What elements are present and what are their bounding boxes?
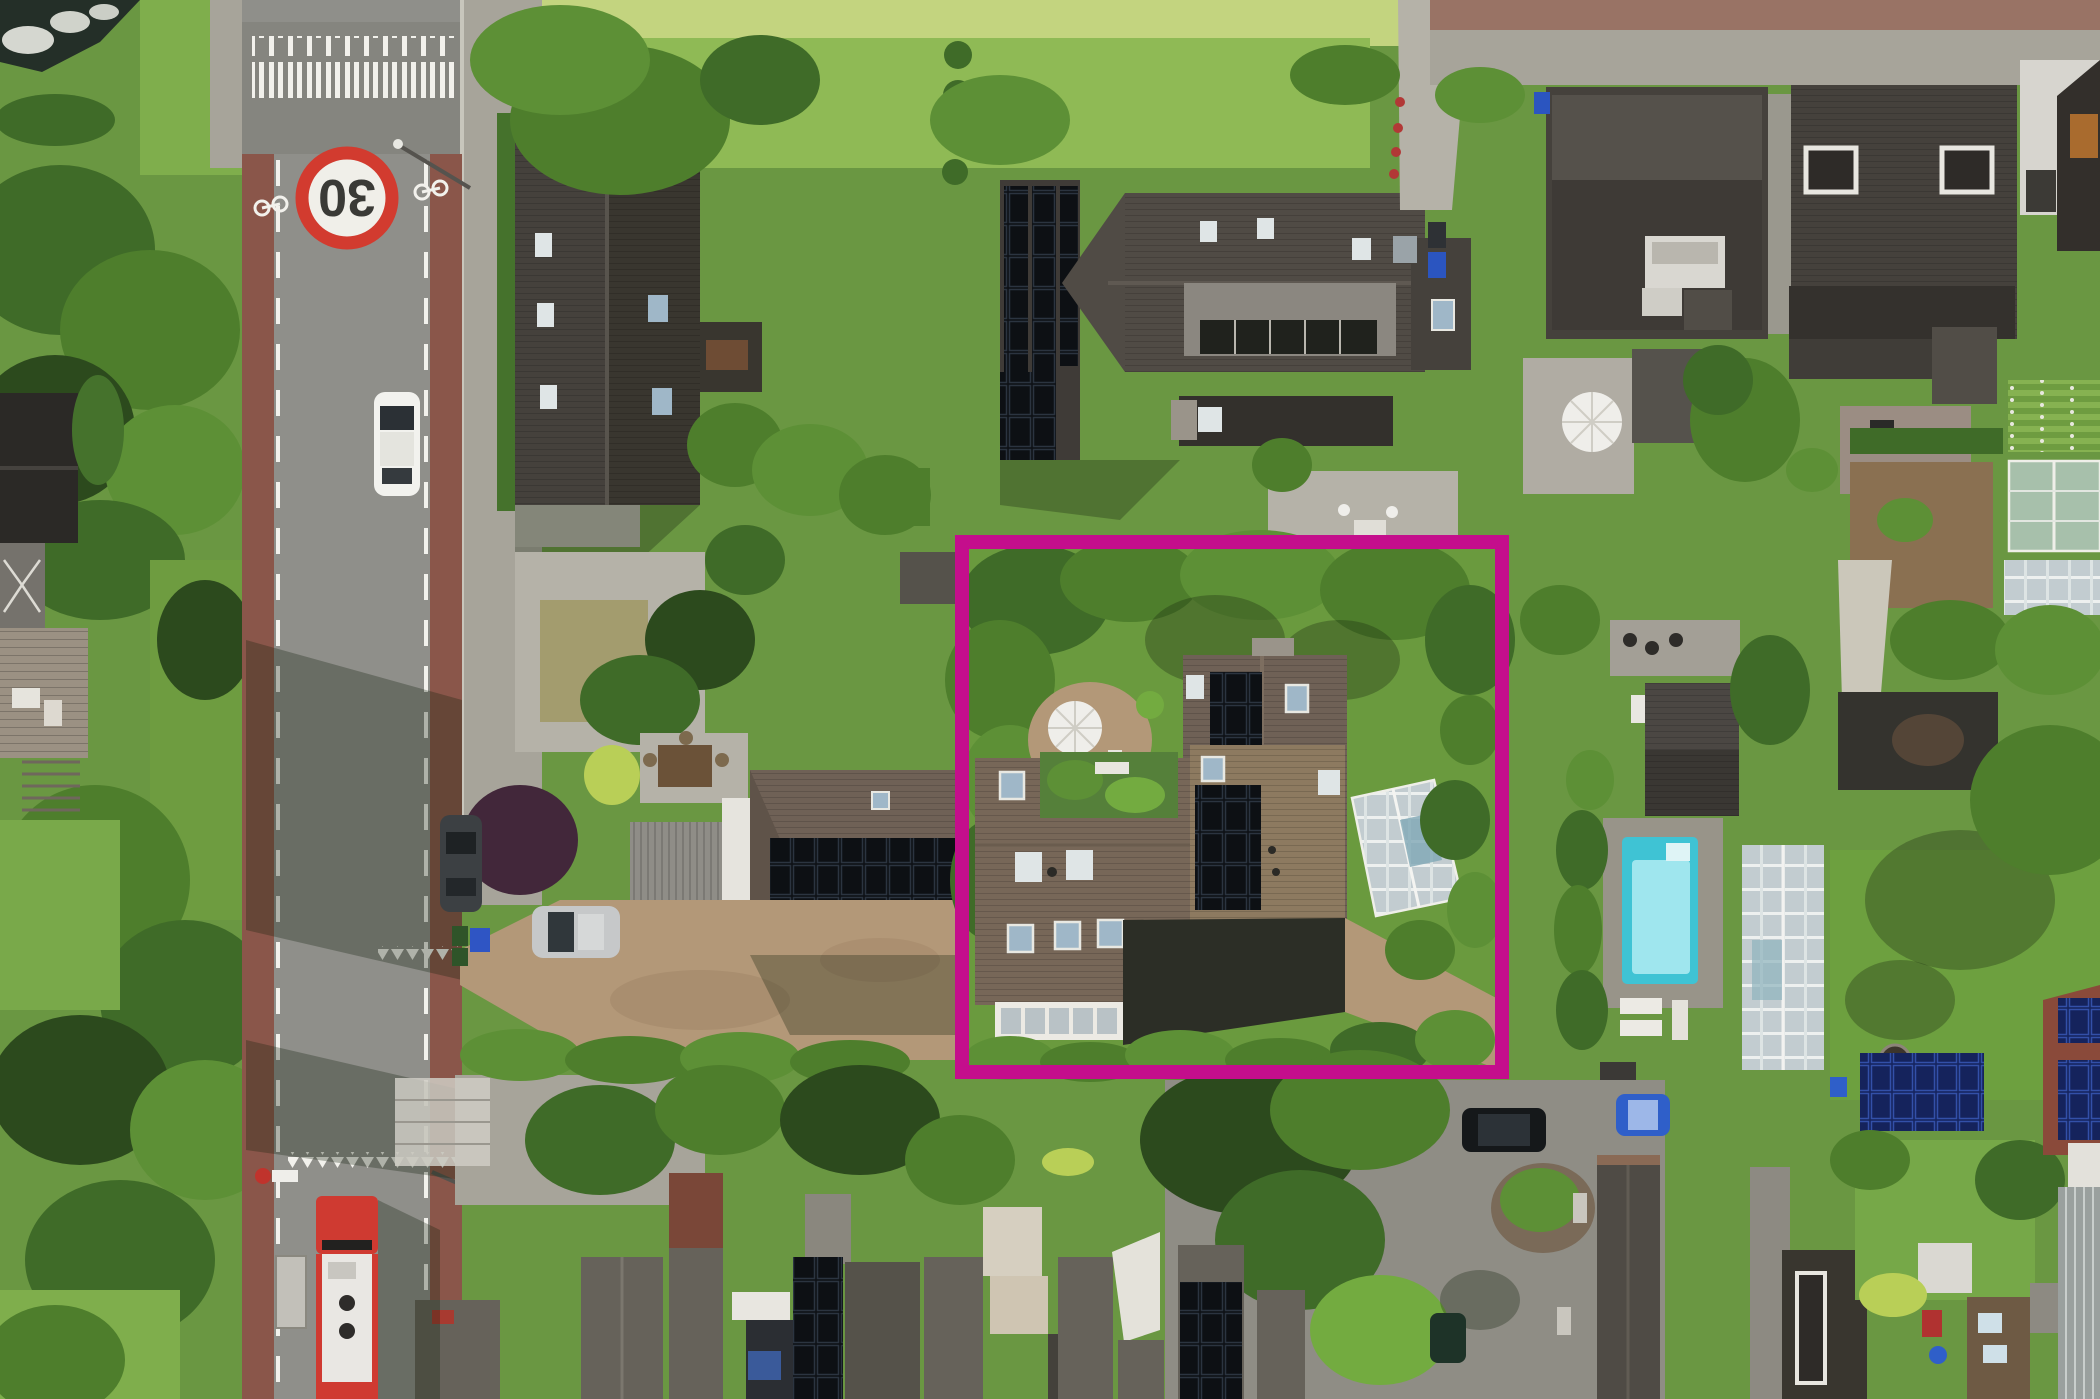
- aerial-photo: 30: [0, 0, 2100, 1399]
- skylight: [1257, 218, 1274, 239]
- pane: [1001, 1008, 1021, 1034]
- bus-stripe: [372, 1254, 378, 1399]
- tree: [580, 655, 700, 745]
- shed-skylight: [1978, 1313, 2002, 1333]
- glass-reflection: [1752, 940, 1782, 1000]
- garden-chair: [643, 753, 657, 767]
- hedge-band: [1850, 428, 2003, 454]
- terrace: [1610, 620, 1740, 676]
- skylight: [1186, 675, 1204, 699]
- solar-cluster: [1195, 785, 1261, 910]
- vegetable-rows: [2008, 380, 2100, 452]
- skylight: [1286, 685, 1308, 712]
- corrugated-roof: [2058, 1187, 2100, 1399]
- court: [845, 1262, 920, 1399]
- rust-roof-patch: [706, 340, 748, 370]
- crosswalk-comb-marking: [252, 36, 456, 98]
- sun-lounger: [1620, 998, 1662, 1014]
- yellow-bush: [1859, 1273, 1927, 1317]
- flower-pot: [1393, 123, 1403, 133]
- box-dormer: [1806, 148, 1856, 192]
- flower-pot: [1391, 147, 1401, 157]
- white-shed: [1918, 1243, 1972, 1293]
- pool-steps: [1666, 843, 1690, 861]
- sun-lounger: [1620, 1020, 1662, 1036]
- tree-shadow: [1845, 960, 1955, 1040]
- bus-stripe: [316, 1254, 322, 1399]
- black-suv: [1462, 1108, 1546, 1152]
- bus-roof-fan: [339, 1323, 355, 1339]
- garage-solar-roof: [1860, 1053, 1984, 1131]
- patio-chair: [1338, 504, 1350, 516]
- hedge: [1435, 67, 1525, 123]
- bed-bushes: [1500, 1168, 1580, 1232]
- car-glass: [1628, 1100, 1658, 1130]
- roof-vent: [1268, 846, 1276, 854]
- blue-bin: [470, 928, 490, 952]
- tree-shadow-on-road: [246, 640, 462, 980]
- yellow-bush: [584, 745, 640, 805]
- terrace-plants: [1105, 777, 1165, 813]
- bright-bushes: [1310, 1275, 1450, 1385]
- parasol-ribs: [1048, 701, 1102, 755]
- red-item: [1922, 1310, 1942, 1337]
- bush: [0, 94, 115, 146]
- solar-roof: [1180, 1282, 1242, 1399]
- tile-texture: [1645, 683, 1739, 816]
- bus-windshield: [322, 1240, 372, 1250]
- side-lawn: [0, 820, 120, 1010]
- pane: [1097, 1008, 1117, 1034]
- flower-pot: [1389, 169, 1399, 179]
- tree-shadowed: [157, 580, 253, 700]
- car-body: [532, 906, 620, 958]
- pool-shallow-water: [1632, 860, 1690, 974]
- car-body: [440, 815, 482, 912]
- terrace-roof: [1118, 1340, 1164, 1399]
- bench: [1573, 1193, 1587, 1223]
- tall-tree: [1683, 345, 1753, 415]
- upper-flat-roof: [1552, 95, 1762, 180]
- topiary-ball: [944, 41, 972, 69]
- bush: [1830, 1130, 1910, 1190]
- pane: [1049, 1008, 1069, 1034]
- skylight: [1318, 770, 1340, 795]
- terrace-roof: [924, 1257, 983, 1399]
- rear-window: [446, 878, 476, 896]
- terrace-lounger: [1095, 762, 1129, 774]
- front-conservatory: [995, 1002, 1123, 1040]
- speed-limit-text: 30: [318, 168, 376, 226]
- cream-roof: [983, 1207, 1042, 1276]
- garden-table: [658, 745, 712, 787]
- sidewalk: [1430, 30, 2100, 85]
- garden-chair: [679, 731, 693, 745]
- white-roof-box: [1642, 288, 1682, 316]
- skylight: [1066, 850, 1093, 880]
- dormer-window-row: [1200, 320, 1377, 354]
- bus-shelter: [276, 1256, 306, 1328]
- blue-ball: [1929, 1346, 1947, 1364]
- chimney-box: [1252, 638, 1294, 656]
- car-roof: [380, 432, 414, 466]
- street-lamp-head: [393, 139, 403, 149]
- shed-skylight: [1983, 1345, 2007, 1363]
- chair: [1623, 633, 1637, 647]
- red-roof-cap: [669, 1173, 723, 1248]
- gap: [1048, 1334, 1058, 1399]
- tree: [700, 35, 820, 125]
- bus-shadow: [378, 1200, 440, 1399]
- plant: [1136, 691, 1164, 719]
- silver-car: [532, 906, 620, 958]
- roof-box: [1393, 236, 1417, 263]
- skylight: [1000, 772, 1024, 799]
- car-body: [1430, 1313, 1466, 1363]
- side-yard: [2030, 1283, 2058, 1333]
- skylight: [1432, 300, 1454, 330]
- roof-stain: [1892, 714, 1964, 766]
- sign-plate: [272, 1170, 298, 1182]
- blue-bin: [1428, 252, 1446, 278]
- pane: [1025, 1008, 1045, 1034]
- flower-pot: [1395, 97, 1405, 107]
- car-roof: [578, 914, 604, 950]
- mid-flat-roof: [1932, 327, 1997, 404]
- skylight: [537, 303, 554, 327]
- bus-roof-fan: [339, 1295, 355, 1311]
- deck-furniture: [12, 688, 40, 708]
- dormer-roof: [1684, 290, 1732, 330]
- blue-car: [1616, 1094, 1670, 1136]
- blossom: [2, 26, 54, 54]
- tree: [1730, 635, 1810, 745]
- side-path: [1768, 94, 1791, 334]
- roof-vent: [1272, 868, 1280, 876]
- suv-glass: [1478, 1114, 1530, 1146]
- skylight: [540, 385, 557, 409]
- windshield: [380, 406, 414, 430]
- tree: [1520, 585, 1600, 655]
- skylight: [535, 233, 552, 257]
- dark-green-car: [1430, 1313, 1466, 1363]
- tree: [1995, 605, 2100, 695]
- skylight: [1055, 922, 1080, 949]
- parasol: [1562, 392, 1622, 452]
- white-car: [374, 392, 420, 496]
- yellow-bush: [1042, 1148, 1094, 1176]
- roof-vent: [1047, 867, 1057, 877]
- bus-rear-band: [318, 1382, 376, 1399]
- skylight: [648, 295, 668, 322]
- glass-veranda: [1742, 845, 1824, 1070]
- parasol: [1048, 701, 1102, 755]
- patio-chair: [1386, 506, 1398, 518]
- roof: [1257, 1290, 1305, 1399]
- roof-box-top: [1652, 242, 1718, 264]
- sun-lounger: [1672, 1000, 1688, 1040]
- balcony-rail: [732, 1292, 790, 1320]
- aerial-photo-canvas: 30: [0, 0, 2100, 1399]
- skylight: [1098, 920, 1123, 947]
- far-right-gardens: [1838, 380, 2100, 705]
- mid-flat-roof: [1789, 339, 1932, 379]
- chair: [1645, 641, 1659, 655]
- left-sidewalk: [210, 0, 246, 168]
- chair: [1669, 633, 1683, 647]
- terrace-roof: [669, 1248, 723, 1399]
- blue-bin: [1534, 92, 1550, 114]
- terrace-roof: [1058, 1257, 1113, 1399]
- bus: [316, 1196, 440, 1399]
- garden-shed: [805, 1194, 851, 1264]
- bush: [705, 525, 785, 595]
- orange-skylight: [2070, 114, 2098, 158]
- big-tree: [470, 5, 650, 115]
- topiary-ball: [942, 159, 968, 185]
- sign-disc: [255, 1168, 271, 1184]
- black-parked-car: [440, 815, 482, 912]
- balcony: [2026, 170, 2056, 212]
- terrace-plants: [1047, 760, 1103, 800]
- blue-solar-panel: [748, 1351, 781, 1380]
- skylight: [1015, 852, 1042, 882]
- skylight: [1008, 925, 1033, 952]
- stone-chimney: [1171, 400, 1197, 440]
- hedge-strip: [497, 113, 515, 511]
- blossom: [50, 11, 90, 33]
- rear-window: [382, 468, 412, 484]
- dark-bin: [1428, 222, 1446, 248]
- hedge: [1290, 45, 1400, 105]
- skylight: [1200, 221, 1217, 242]
- solar-roof: [793, 1257, 843, 1399]
- topiary-block: [860, 468, 930, 526]
- solar-panel: [1000, 372, 1056, 460]
- speed-limit-30-marking: 30: [302, 153, 392, 243]
- green-bin: [452, 926, 468, 946]
- blue-bin: [1830, 1077, 1847, 1097]
- blossom: [89, 4, 119, 20]
- tree: [930, 75, 1070, 165]
- blue-solar-array: [2058, 1060, 2100, 1140]
- pane: [1073, 1008, 1093, 1034]
- skylight: [872, 792, 889, 809]
- skylight: [1352, 238, 1371, 260]
- skylight: [1198, 407, 1222, 432]
- bench: [1557, 1307, 1571, 1335]
- bush: [1786, 448, 1838, 492]
- bus-roof-hatch: [328, 1262, 356, 1279]
- white-wall: [2068, 1143, 2100, 1187]
- windshield: [446, 832, 476, 854]
- deck-chair: [44, 700, 62, 726]
- bush: [1252, 438, 1312, 492]
- blue-solar-array: [2058, 998, 2100, 1043]
- garden-chair: [715, 753, 729, 767]
- skylight: [1202, 757, 1224, 781]
- window-band: [1797, 1273, 1825, 1383]
- skylight: [652, 388, 672, 415]
- green-bin: [452, 948, 468, 966]
- highlighted-property: [945, 530, 1515, 1082]
- cream-roof-lower: [990, 1276, 1048, 1334]
- box-dormer: [1942, 148, 1992, 192]
- tree: [1890, 600, 2010, 680]
- parasol-ribs: [1562, 392, 1622, 452]
- greenhouse: [2009, 461, 2100, 551]
- solar-array: [770, 838, 960, 900]
- bush: [1877, 498, 1933, 542]
- hedge: [72, 375, 124, 485]
- windshield: [548, 912, 574, 952]
